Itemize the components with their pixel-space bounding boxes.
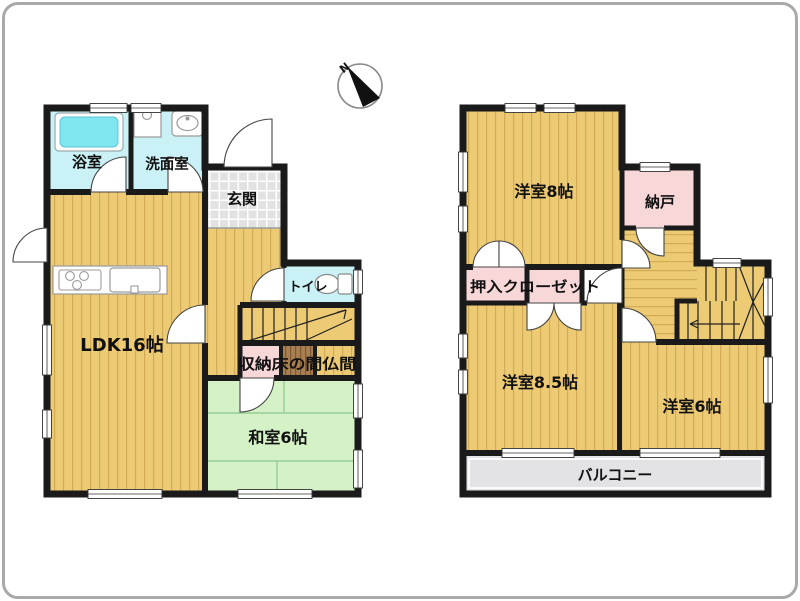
compass-icon: N (337, 60, 382, 108)
bath-label: 浴室 (72, 153, 102, 171)
kitchen-sink-icon (110, 268, 160, 293)
washitsu-label: 和室6帖 (248, 428, 307, 447)
ldk-exterior-door (13, 228, 47, 262)
entrance-door (224, 119, 272, 167)
washroom-label: 洗面室 (145, 155, 189, 173)
washing-machine-icon (134, 111, 161, 138)
room85-label: 洋室8.5帖 (502, 373, 578, 392)
floorplan-image: N (0, 0, 800, 601)
kitchen-counter (53, 266, 167, 294)
floor2-plan: 洋室8帖 納戸 押入クローゼット 洋室8.5帖 洋室6帖 バルコニー (459, 104, 773, 495)
room8-label: 洋室8帖 (514, 182, 573, 201)
floor1-plan: 浴室 洗面室 玄関 LDK16帖 トイレ 収納床の間仏間 和室6帖 (13, 104, 363, 499)
room6-label: 洋室6帖 (662, 397, 721, 416)
nando-label: 納戸 (645, 193, 675, 211)
entrance-label: 玄関 (227, 190, 257, 208)
balcony-label: バルコニー (578, 466, 653, 484)
washbasin-icon (172, 111, 203, 136)
closet-label: 押入クローゼット (470, 278, 600, 296)
storage-row-label: 収納床の間仏間 (238, 355, 356, 373)
bathtub-icon (55, 113, 123, 151)
toilet-label: トイレ (288, 280, 327, 295)
floorplan-svg: N (0, 0, 800, 601)
ldk-label: LDK16帖 (80, 334, 163, 356)
stove-icon (59, 270, 101, 290)
